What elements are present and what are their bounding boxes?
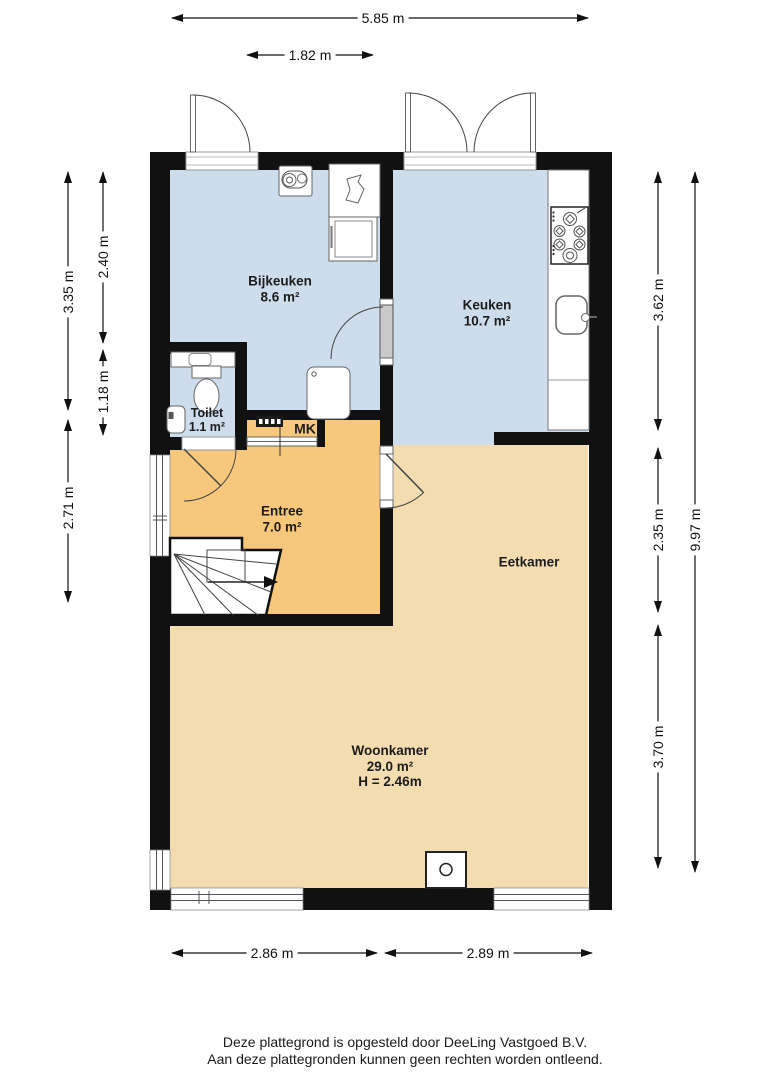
stove-knob	[552, 245, 554, 247]
stove-icon	[551, 207, 588, 264]
staircase	[170, 538, 281, 615]
fireplace-flue	[440, 864, 452, 876]
dim-left-inner-upper: 2.40 m	[95, 232, 111, 283]
stove-knob	[552, 215, 554, 217]
washing-machine-icon	[329, 217, 377, 261]
stove-knob	[552, 219, 554, 221]
meter-digit	[265, 419, 269, 424]
meter-digit	[259, 419, 263, 424]
dim-top-total: 5.85 m	[358, 10, 409, 26]
room-name: Woonkamer	[351, 743, 428, 759]
room-name: Entree	[261, 504, 303, 520]
room-label-toilet: Toilet 1.1 m²	[189, 406, 225, 434]
door-opening-bijkeuken	[186, 152, 258, 170]
window-frame	[150, 455, 170, 556]
dim-left-outer-upper: 3.35 m	[60, 267, 76, 318]
window-entree-left	[150, 455, 170, 556]
stove-knob	[552, 211, 554, 213]
dim-bottom-right: 2.89 m	[463, 945, 514, 961]
door-hinge-block	[380, 446, 393, 454]
basin-tap	[169, 412, 174, 419]
window-bottom-right	[494, 888, 589, 910]
room-ceiling-height: H = 2.46m	[351, 774, 428, 790]
faucet-base	[582, 314, 590, 322]
door-opening-toilet	[182, 437, 235, 450]
footer-disclaimer-line1: Deze plattegrond is opgesteld door DeeLi…	[223, 1034, 587, 1050]
footer-disclaimer-line2: Aan deze plattegronden kunnen geen recht…	[207, 1051, 602, 1067]
meter-digit	[277, 419, 281, 424]
room-name: Eetkamer	[499, 554, 560, 570]
room-label-keuken: Keuken 10.7 m²	[463, 298, 512, 329]
room-label-entree: Entree 7.0 m²	[261, 504, 303, 535]
dim-left-outer-lower: 2.71 m	[60, 483, 76, 534]
window-woonkamer-left	[150, 850, 170, 890]
room-name: Keuken	[463, 298, 512, 314]
room-label-meterkast: MK	[294, 421, 316, 437]
door-hinge-block	[380, 358, 393, 365]
basin-body	[167, 406, 185, 433]
stove-knob	[552, 253, 554, 255]
room-label-bijkeuken: Bijkeuken 8.6 m²	[248, 274, 312, 305]
dim-right-inner-lower: 3.70 m	[650, 722, 666, 773]
window-frame	[150, 850, 170, 890]
meter-digit	[271, 419, 275, 424]
dim-top-door: 1.82 m	[285, 47, 336, 63]
door-leaf-bijkeuken	[191, 95, 196, 152]
door-opening-keuken-double	[404, 152, 536, 170]
window-frame	[494, 888, 589, 910]
appliance-dial	[283, 174, 296, 187]
wall-keuken-eetkamer-stub	[494, 432, 589, 445]
toilet-cistern-basin	[189, 354, 211, 366]
room-name: Toilet	[189, 406, 225, 420]
door-leaf-keuken-left	[406, 93, 411, 152]
dim-right-inner-middle: 2.35 m	[650, 505, 666, 556]
room-name: MK	[294, 421, 316, 437]
boiler-body	[307, 367, 350, 419]
washer-body	[329, 217, 377, 261]
floorplan-page: Bijkeuken 8.6 m² Keuken 10.7 m² Toilet 1…	[0, 0, 764, 1080]
fireplace-icon	[426, 852, 466, 888]
wall-toilet-right	[235, 342, 247, 450]
appliance-dial	[298, 174, 307, 183]
room-area: 10.7 m²	[463, 313, 512, 329]
wall-right	[589, 152, 612, 910]
hand-basin-icon	[167, 406, 185, 433]
room-label-woonkamer: Woonkamer 29.0 m² H = 2.46m	[351, 743, 428, 790]
window-bottom-left	[171, 888, 303, 910]
door-swing-arc	[408, 93, 467, 152]
room-area: 1.1 m²	[189, 420, 225, 434]
stove-knob	[552, 249, 554, 251]
room-area: 29.0 m²	[351, 758, 428, 774]
door-swing-arc	[474, 93, 533, 152]
dim-left-inner-lower: 1.18 m	[95, 367, 111, 418]
wall-meterkast-stub	[317, 420, 325, 447]
door-leaf-keuken-right	[531, 93, 536, 152]
dim-bottom-left: 2.86 m	[247, 945, 298, 961]
cv-boiler-icon	[307, 367, 350, 419]
room-area: 7.0 m²	[261, 519, 303, 535]
dim-right-inner-upper: 3.62 m	[650, 275, 666, 326]
door-hinge-block	[380, 500, 393, 508]
window-frame	[171, 888, 303, 910]
dim-right-total: 9.97 m	[687, 505, 703, 556]
door-leaf-bijkeuken-keuken	[380, 305, 393, 359]
door-swing-arc	[193, 95, 250, 152]
wall-divider-vertical	[380, 152, 393, 626]
utility-sink-icon	[329, 164, 380, 217]
toilet-tank	[192, 366, 221, 378]
room-area: 8.6 m²	[248, 289, 312, 305]
room-label-eetkamer: Eetkamer	[499, 554, 560, 570]
boiler-unit-icon	[279, 166, 312, 196]
room-name: Bijkeuken	[248, 274, 312, 290]
